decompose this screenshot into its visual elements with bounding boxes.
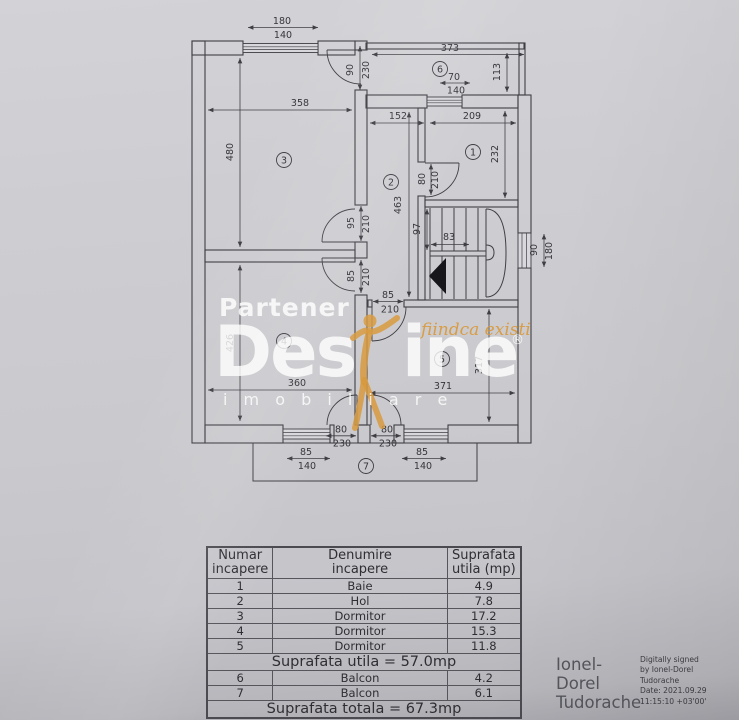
signature-details: Digitally signed by Ionel-Dorel Tudorach… [640,655,707,707]
room-label-3: 3 [277,153,292,168]
door-balcony-room4 [327,395,357,425]
stairs-group [429,208,506,299]
dim-room5-w: 371 [434,381,452,392]
dim-room4-h: 426 [225,334,236,352]
dim-hall-h: 463 [393,196,404,214]
table-row: 3Dormitor17.2 [207,609,521,624]
window-bath [427,97,462,106]
dim-room3-w: 358 [291,98,309,109]
dim-win-balc4-w: 85 [300,447,312,458]
dim-win-stair-h: 180 [544,242,555,260]
svg-text:4: 4 [281,337,287,348]
window-room5 [404,429,448,439]
dim-door-balcony6-w: 90 [345,64,356,76]
total-row: Suprafata totala = 67.3mp [207,701,521,719]
subtotal-row: Suprafata utila = 57.0mp [207,654,521,671]
room-label-1: 1 [466,145,481,160]
room-label-4: 4 [277,334,292,349]
table-row: 1Baie4.9 [207,579,521,594]
dim-win-stair-w: 90 [529,244,540,256]
dim-door-room3-h: 210 [361,215,372,233]
dim-door-room5-w: 85 [382,290,394,301]
room-label-5: 5 [435,352,450,367]
dim-door-room1-w: 80 [417,173,428,185]
dim-stair-width: 97 [412,223,423,235]
dim-room1-w: 209 [463,111,481,122]
table-row: 6Balcon4.2 [207,671,521,686]
windows-group [243,44,531,440]
area-table: Numarincapere Denumireincapere Suprafata… [206,546,522,719]
door-balcony-room5 [371,395,401,425]
dim-room4-w: 360 [288,378,306,389]
room-label-2: 2 [384,175,399,190]
dim-door-room4-h: 210 [361,268,372,286]
dim-door-balc5-h: 230 [379,439,397,450]
dim-win-bath-h: 140 [447,86,465,97]
dim-door-room5-h: 210 [381,305,399,316]
dim-stair-tread: 83 [443,232,455,243]
dim-door-room4-w: 85 [346,270,357,282]
dim-door-room3-w: 95 [346,217,357,229]
svg-text:5: 5 [439,355,445,366]
dim-win-bath-w: 70 [448,72,460,83]
window-top [243,44,318,53]
table-row: 2Hol7.8 [207,594,521,609]
document-photo: 180 140 373 113 90 230 70 140 358 480 15… [0,0,739,720]
dim-door-room1-h: 210 [430,171,441,189]
dim-win-top-h: 140 [274,30,292,41]
dim-win-top-w: 180 [273,16,291,27]
dim-win-balc5-h: 140 [414,461,432,472]
room-label-6: 6 [433,62,448,77]
dim-room5-h: 317 [474,356,485,374]
dim-room3-h: 480 [225,143,236,161]
header-denumire: Denumireincapere [273,547,447,579]
svg-text:3: 3 [281,156,287,167]
signature-name: Ionel- Dorel Tudorache [556,655,641,712]
dim-hall-w: 152 [389,111,407,122]
dim-door-balc4-w: 80 [335,425,347,436]
dim-door-balc4-h: 230 [333,439,351,450]
floor-plan: 180 140 373 113 90 230 70 140 358 480 15… [0,0,739,540]
svg-text:2: 2 [388,178,394,189]
dim-balcony6-w: 373 [441,43,459,54]
header-numar: Numarincapere [207,547,273,579]
table-row: 5Dormitor11.8 [207,639,521,654]
dim-balcony6-h: 113 [492,63,503,81]
dimensions-group: 180 140 373 113 90 230 70 140 358 480 15… [208,16,555,472]
dim-door-balc5-w: 80 [381,425,393,436]
dim-room1-h: 232 [490,145,501,163]
svg-text:6: 6 [437,65,443,76]
walls-group [192,41,531,443]
dim-door-balcony6-h: 230 [361,61,372,79]
dim-win-balc5-w: 85 [416,447,428,458]
header-suprafata: Suprafatautila (mp) [447,547,521,579]
dim-win-balc4-h: 140 [298,461,316,472]
table-row: 4Dormitor15.3 [207,624,521,639]
svg-text:1: 1 [470,148,476,159]
svg-text:7: 7 [363,462,369,473]
table-row: 7Balcon6.1 [207,686,521,701]
stair-direction-arrow [429,258,446,294]
table-header-row: Numarincapere Denumireincapere Suprafata… [207,547,521,579]
room-label-7: 7 [359,459,374,474]
window-room4 [283,429,330,439]
